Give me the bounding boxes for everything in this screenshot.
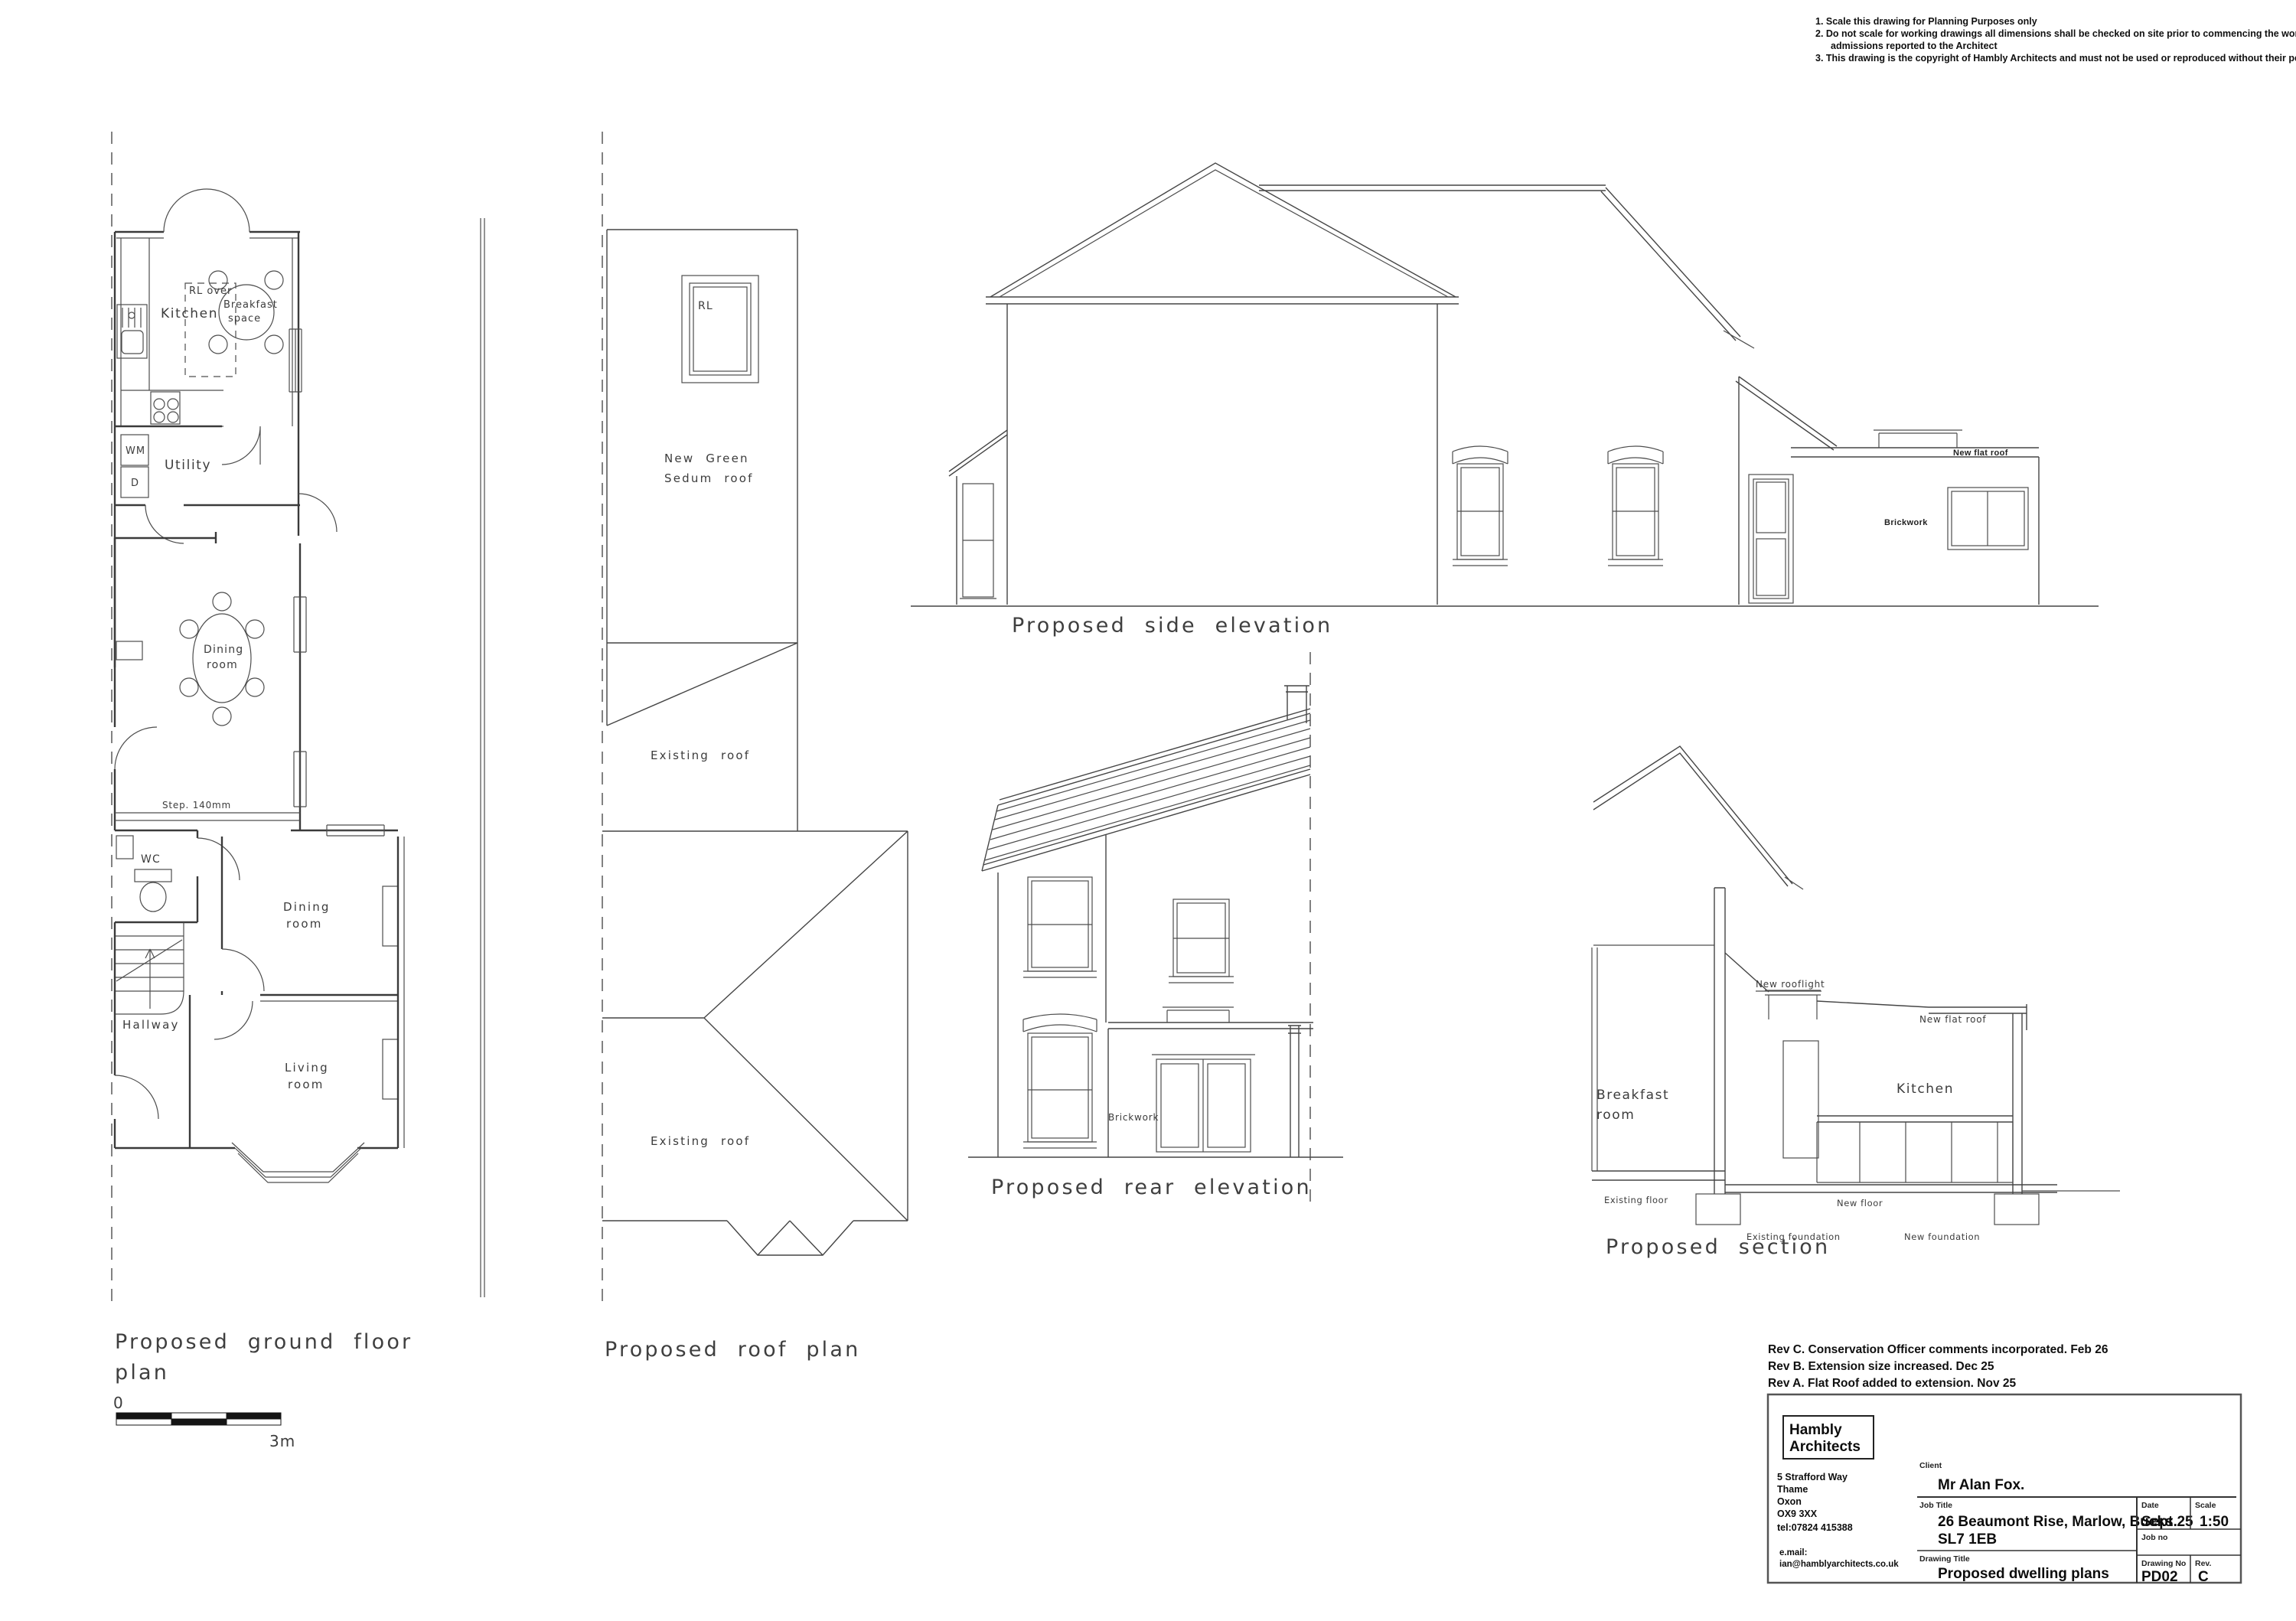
- sink-bowl: [122, 331, 143, 354]
- rear-external-door: [298, 494, 337, 532]
- step-lines: [115, 813, 300, 820]
- radiator: [116, 641, 142, 660]
- side-fence-line: [481, 218, 484, 1297]
- internal-door: [1783, 1041, 1818, 1158]
- drawing-no: PD02: [2141, 1569, 2178, 1585]
- address-3: Oxon: [1777, 1496, 1802, 1507]
- scale-zero: 0: [113, 1394, 124, 1412]
- rear-upper-right-window: [1169, 899, 1234, 983]
- chair: [180, 620, 198, 638]
- chimney-breast: [383, 886, 398, 946]
- rear-wall-window: [327, 825, 384, 836]
- rev-a: Rev A. Flat Roof added to extension. Nov…: [1768, 1377, 2016, 1390]
- address-block: 5 Strafford Way Thame Oxon OX9 3XX tel:0…: [1777, 1472, 1899, 1569]
- sedum-label-2: Sedum roof: [664, 471, 754, 485]
- porch: [949, 430, 1007, 605]
- rev-value: C: [2198, 1569, 2209, 1585]
- staircase: [115, 922, 184, 1014]
- toilet-cistern: [135, 869, 171, 882]
- dining-front-label-2: room: [286, 917, 323, 931]
- ground-floor-caption-1: Proposed ground floor: [115, 1330, 413, 1354]
- scale-value: 1:50: [2200, 1514, 2229, 1530]
- bay-roof: [727, 1221, 853, 1255]
- sedum-label-1: New Green: [664, 452, 749, 465]
- drawing-no-label: Drawing No: [2141, 1559, 2186, 1568]
- drawing-title-label: Drawing Title: [1919, 1554, 1970, 1564]
- section-caption: Proposed section: [1606, 1235, 1830, 1259]
- chair: [265, 271, 283, 289]
- chair: [213, 707, 231, 726]
- note-line-3: admissions reported to the Architect: [1831, 41, 1998, 51]
- rear-elevation-caption: Proposed rear elevation: [991, 1176, 1312, 1199]
- chair: [246, 620, 264, 638]
- address-2: Thame: [1777, 1484, 1808, 1495]
- link-roof-slope: [1736, 377, 1837, 450]
- living-label-1: Living: [285, 1061, 329, 1075]
- dining-door: [115, 727, 157, 769]
- breakfast-label-1: Breakfast: [223, 299, 278, 311]
- extension-door: [1749, 475, 1793, 603]
- brickwork-label-side: Brickwork: [1884, 518, 1928, 527]
- new-floor-lines: [1725, 1185, 2057, 1192]
- utility-label: Utility: [165, 458, 211, 473]
- drawing-sheet: Kitchen RL over Breakfast space Utility …: [0, 0, 2296, 1621]
- job-title-2: SL7 1EB: [1938, 1531, 1997, 1548]
- kitchen-units: [1817, 1116, 2013, 1182]
- new-floor-label: New floor: [1837, 1198, 1883, 1208]
- breakfast-room-label-1: Breakfast: [1596, 1088, 1669, 1103]
- title-block: Hambly Architects 5 Strafford Way Thame …: [1768, 1394, 2241, 1585]
- note-line-1: 1. Scale this drawing for Planning Purpo…: [1815, 16, 2037, 27]
- flat-roof-upstand: [1874, 430, 1962, 448]
- french-doors: [164, 189, 249, 232]
- dining-mid-label-1: Dining: [204, 644, 243, 656]
- chair: [209, 335, 227, 354]
- new-foundation-block: [1994, 1194, 2039, 1225]
- hallway-label: Hallway: [122, 1018, 180, 1032]
- note-line-2: 2. Do not scale for working drawings all…: [1815, 28, 2296, 39]
- revision-notes: Rev C. Conservation Officer comments inc…: [1768, 1343, 2108, 1390]
- front-dining-door: [222, 949, 264, 991]
- existing-floor-lines: [1592, 1171, 1725, 1180]
- extension-wall-cut: [2013, 1013, 2022, 1194]
- living-door: [214, 1001, 253, 1039]
- ground-floor-plan: Kitchen RL over Breakfast space Utility …: [112, 132, 484, 1450]
- side-elevation: New flat roof Brickwork Proposed side el…: [911, 163, 2099, 638]
- existing-rear-wall-cut: [1714, 888, 1725, 1194]
- dining-window-2: [294, 752, 306, 807]
- existing-roof-label-upper: Existing roof: [651, 749, 750, 762]
- architectural-drawing: Kitchen RL over Breakfast space Utility …: [0, 0, 2296, 1621]
- rev-b: Rev B. Extension size increased. Dec 25: [1768, 1360, 1994, 1373]
- sash-window: [1453, 446, 1508, 566]
- scale-3m: 3m: [269, 1432, 295, 1450]
- rear-elevation: Brickwork Proposed rear elevation: [968, 652, 1343, 1203]
- section-cut-left-wall: [1592, 947, 1597, 1171]
- existing-floor-label: Existing floor: [1604, 1195, 1668, 1205]
- breakfast-label-2: space: [228, 313, 261, 325]
- sash-window: [1608, 446, 1663, 566]
- new-flat-roof-label-side: New flat roof: [1953, 448, 2008, 458]
- roof-plan: RL New Green Sedum roof Existing roof Ex…: [602, 132, 908, 1362]
- wc-door: [197, 838, 240, 880]
- front-door: [115, 1075, 158, 1119]
- new-flat-roof-label-section: New flat roof: [1919, 1014, 1986, 1025]
- date-label: Date: [2141, 1501, 2159, 1510]
- wm-label: WM: [126, 445, 145, 457]
- extension-window: [1948, 488, 2028, 550]
- old-rear-wall: [115, 532, 216, 543]
- scale-bar: 0 3m: [113, 1394, 295, 1450]
- brickwork-label-rear: Brickwork: [1108, 1112, 1159, 1123]
- breakfast-room-label-2: room: [1596, 1107, 1635, 1123]
- company-name-1: Hambly: [1789, 1422, 1842, 1438]
- address-4: OX9 3XX: [1777, 1508, 1818, 1519]
- chair: [265, 335, 283, 354]
- dining-front-label-1: Dining: [283, 900, 331, 914]
- scale-label: Scale: [2195, 1501, 2216, 1510]
- client-name: Mr Alan Fox.: [1938, 1477, 2024, 1493]
- roof-plan-caption: Proposed roof plan: [605, 1338, 860, 1362]
- step-label: Step. 140mm: [162, 800, 231, 810]
- chair: [180, 678, 198, 696]
- utility-door: [222, 426, 260, 465]
- new-rooflight-label: New rooflight: [1756, 979, 1825, 990]
- dining-window-1: [294, 597, 306, 652]
- dining-table: [193, 614, 251, 703]
- job-title-label: Job Title: [1919, 1501, 1952, 1510]
- email: ian@hamblyarchitects.co.uk: [1779, 1560, 1899, 1569]
- section-roof: [1593, 746, 1792, 886]
- eaves-fascia: [986, 297, 1459, 304]
- wc-label: WC: [141, 853, 161, 866]
- drawing-title: Proposed dwelling plans: [1938, 1566, 2109, 1582]
- existing-hip-roof: [602, 831, 908, 1221]
- rooflight-over-outline: [185, 283, 236, 377]
- rear-french-doors: [1152, 1055, 1255, 1152]
- rl-label: RL: [698, 300, 713, 312]
- existing-foundation-block: [1696, 1194, 1740, 1225]
- rear-hip-slope: [1601, 188, 1740, 341]
- toilet-bowl: [140, 882, 166, 912]
- ground-floor-caption-2: plan: [115, 1361, 169, 1385]
- new-foundation-label: New foundation: [1904, 1231, 1980, 1242]
- company-name-2: Architects: [1789, 1439, 1861, 1455]
- wc-walls: [115, 830, 197, 922]
- date-value: Sept 25: [2141, 1514, 2193, 1530]
- job-no-label: Job no: [2141, 1533, 2167, 1542]
- drainer-lines: [122, 308, 141, 328]
- section-kitchen-label: Kitchen: [1896, 1081, 1954, 1097]
- chimney-breast: [383, 1039, 398, 1099]
- note-line-4: 3. This drawing is the copyright of Hamb…: [1815, 53, 2296, 64]
- kitchen-window: [289, 329, 302, 392]
- rear-roof-upstand: [1163, 1007, 1234, 1023]
- rear-roof: [982, 709, 1310, 871]
- rear-flat-roof: [1108, 1023, 1313, 1029]
- rev-c: Rev C. Conservation Officer comments inc…: [1768, 1343, 2108, 1356]
- living-label-2: room: [288, 1078, 325, 1091]
- rear-upper-left-window: [1023, 877, 1097, 977]
- rooflight-inner: [690, 283, 751, 375]
- general-notes: 1. Scale this drawing for Planning Purpo…: [1815, 16, 2296, 64]
- wc-basin: [116, 836, 133, 859]
- phone: tel:07824 415388: [1777, 1522, 1853, 1533]
- proposed-section: Breakfast room Kitchen New rooflight New…: [1592, 746, 2120, 1259]
- rear-ridge: [1259, 185, 1606, 191]
- front-block-walls: [1007, 304, 1437, 605]
- rear-lower-left-window: [1023, 1014, 1097, 1148]
- chair: [213, 592, 231, 611]
- sink-tap: [129, 312, 135, 318]
- chair: [246, 678, 264, 696]
- client-label: Client: [1919, 1461, 1942, 1470]
- address-1: 5 Strafford Way: [1777, 1472, 1848, 1482]
- side-elevation-caption: Proposed side elevation: [1012, 614, 1332, 638]
- email-label: e.mail:: [1779, 1548, 1807, 1557]
- dryer-label: D: [131, 478, 139, 489]
- bay-window: [190, 1143, 398, 1182]
- dining-mid-label-2: room: [207, 659, 238, 671]
- rev-label: Rev.: [2195, 1559, 2211, 1568]
- sedum-roof-outline: [607, 230, 797, 831]
- section-rooflight: [1765, 990, 1821, 1019]
- rl-over-label: RL over: [189, 285, 232, 297]
- boundary-pier: [1288, 1026, 1301, 1157]
- hip-roof-outline: [990, 163, 1456, 297]
- worktop: [121, 390, 223, 426]
- existing-roof-label-lower: Existing roof: [651, 1134, 750, 1148]
- kitchen-label: Kitchen: [161, 306, 218, 321]
